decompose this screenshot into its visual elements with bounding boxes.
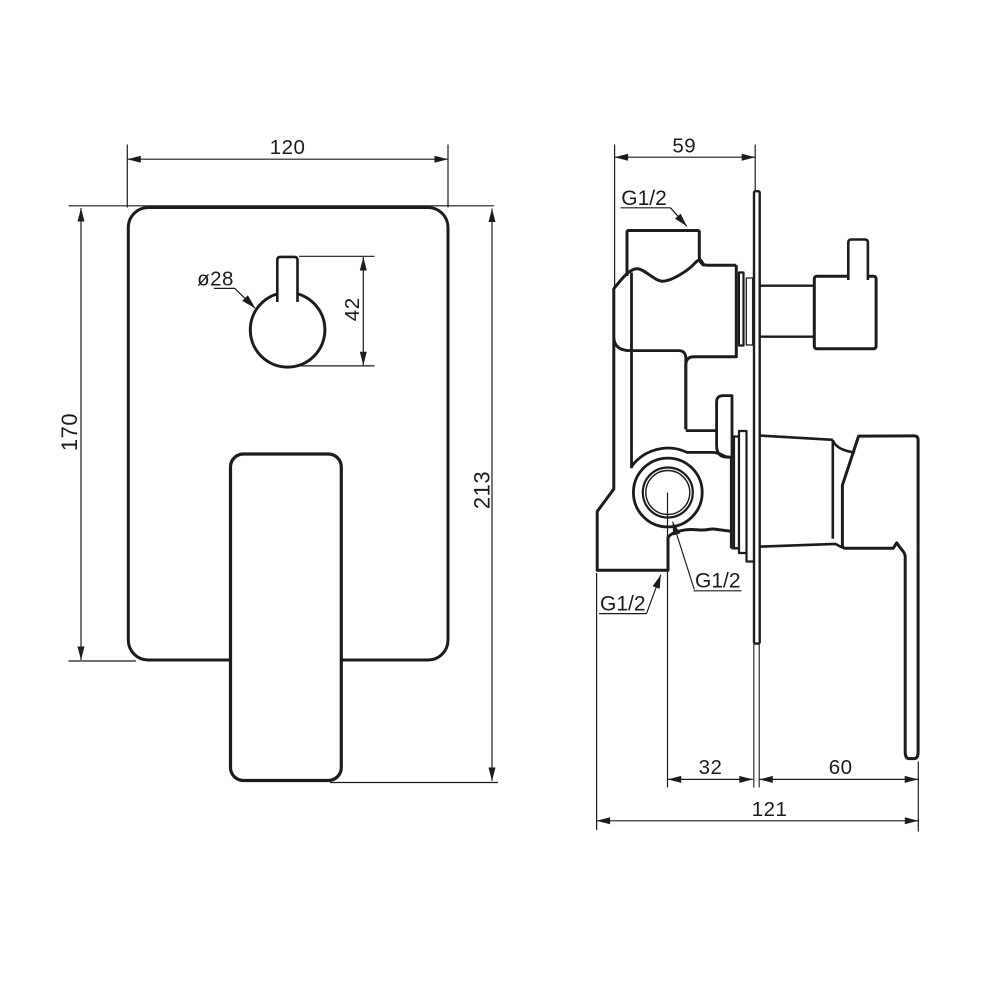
svg-text:213: 213 [469, 471, 494, 509]
svg-text:32: 32 [699, 756, 723, 779]
svg-text:G1/2: G1/2 [695, 570, 741, 593]
svg-text:42: 42 [341, 297, 364, 321]
svg-text:121: 121 [752, 798, 788, 821]
svg-text:ø28: ø28 [197, 268, 234, 291]
svg-text:59: 59 [672, 135, 696, 158]
svg-text:60: 60 [829, 756, 853, 779]
svg-text:G1/2: G1/2 [600, 593, 646, 616]
svg-text:170: 170 [57, 413, 82, 451]
svg-text:G1/2: G1/2 [621, 187, 667, 210]
svg-text:120: 120 [270, 136, 306, 159]
